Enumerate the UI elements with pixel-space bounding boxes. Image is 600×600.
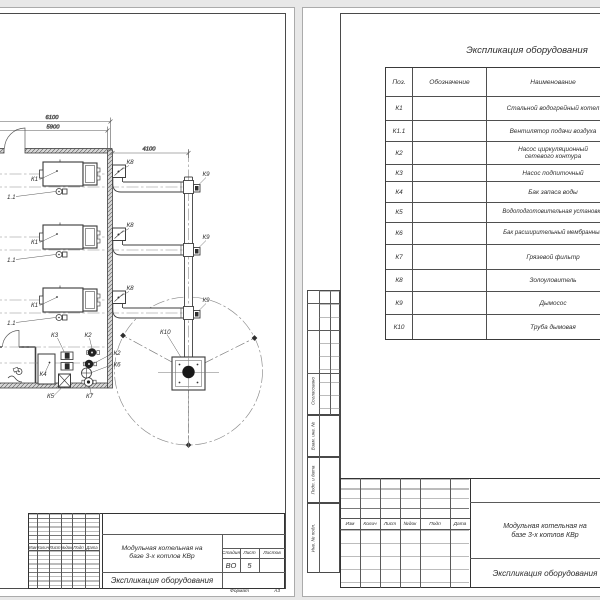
format-note: ФорматА3 [230,589,280,596]
rev-header-ndok: №док [61,544,72,551]
table-row: К7Грязевой фильтр [386,244,600,269]
table-header-row: Поз. Обозначение Наименование [386,68,600,96]
project-title: Модульная котельная на базе 3-х котлов К… [104,536,220,570]
sheets-label: Листов [259,549,285,557]
stage-label: Стадия [222,549,240,557]
table-row: К8Золоуловитель [386,269,600,291]
rev-header-list: Лист [49,544,61,551]
flue-duct-fills [123,177,193,369]
dim-width-inner: 5900 [47,125,61,131]
entrance-door [5,128,26,149]
doc-title: Экспликация оборудования [104,572,220,588]
label-ash-catcher-3: К8 [127,285,135,292]
sheet-label: Лист [240,549,259,557]
pump-room-equipment [8,348,100,387]
project-title: Модульная котельная на базе 3-х котлов К… [472,506,600,556]
label-smoke-exhauster-3: К9 [203,297,211,304]
label-mud-filter: К7 [86,393,94,400]
label-boiler-2: К1 [31,239,38,246]
table-row: К1Стальной водогрейный котел [386,96,600,120]
sheet-number: 5 [240,558,259,572]
rev-header-izm: Изм [340,519,360,529]
rev-header-ndok: №док [400,519,420,529]
rev-header-list: Лист [380,519,400,529]
table-row: К5Водоподготовительная установка [386,202,600,222]
table-title: Экспликация оборудования [432,43,600,57]
chimney-pipe [182,366,194,378]
table-row: К6Бак расширительный мембранный [386,222,600,244]
col-header-name: Наименование [487,68,600,96]
stage-value: ВО [222,558,240,572]
label-makeup-pump: К3 [51,332,59,339]
label-ash-catcher-1: К8 [127,159,135,166]
sidebar-inv-no: Инв. № подл. [311,524,316,553]
table-row: К3Насос подпиточный [386,164,600,181]
label-water-treatment: К5 [47,393,55,400]
label-chimney: К10 [160,329,171,336]
rev-header-data: Дата [450,519,470,529]
label-expansion-tank: К6 [114,362,122,369]
label-network-pump-2: К2 [114,350,122,357]
label-fan-1: 1.1 [7,194,16,201]
rev-header-podp: Подп [420,519,450,529]
rev-header-data: Дата [85,544,99,551]
label-boiler-3: К1 [31,302,38,309]
table-row: К10Труба дымовая [386,314,600,339]
boilers [40,160,101,321]
label-smoke-exhauster-1: К9 [203,171,211,178]
cad-viewer: 6100 5900 4100 К1 К1 К1 1.1 1.1 1.1 К8 [0,0,600,600]
rev-header-kolich: Колич [360,519,380,529]
label-network-pump-1: К2 [85,332,93,339]
label-storage-tank: К4 [40,371,48,378]
pump-room-door [3,331,20,348]
label-ash-catcher-2: К8 [127,222,135,229]
label-fan-3: 1.1 [7,320,16,327]
rev-header-podp: Подп [72,544,85,551]
col-header-designation: Обозначение [413,68,487,96]
sidebar-replace-inv: Взам. инв. № [311,422,316,450]
equipment-table: Поз. Обозначение Наименование К1Стальной… [385,67,600,340]
label-fan-2: 1.1 [7,257,16,264]
col-header-pos: Поз. [386,68,413,96]
sidebar-agreed: Согласовано [311,377,316,405]
doc-title: Экспликация оборудования [472,560,600,586]
table-row: К9Дымосос [386,291,600,314]
table-row: К2 Насос циркуляционныйсетевого контура [386,141,600,164]
label-boiler-1: К1 [31,176,38,183]
label-smoke-exhauster-2: К9 [203,234,211,241]
rev-header-kolich: Колич [37,544,49,551]
dim-width-total: 6100 [46,115,60,121]
table-row: К1.1Вентилятор подачи воздуха [386,120,600,141]
sidebar-sign-date: Подп. и дата [311,466,316,495]
dim-flue-offset: 4100 [143,147,157,153]
table-row: К4Бак запаса воды [386,181,600,202]
